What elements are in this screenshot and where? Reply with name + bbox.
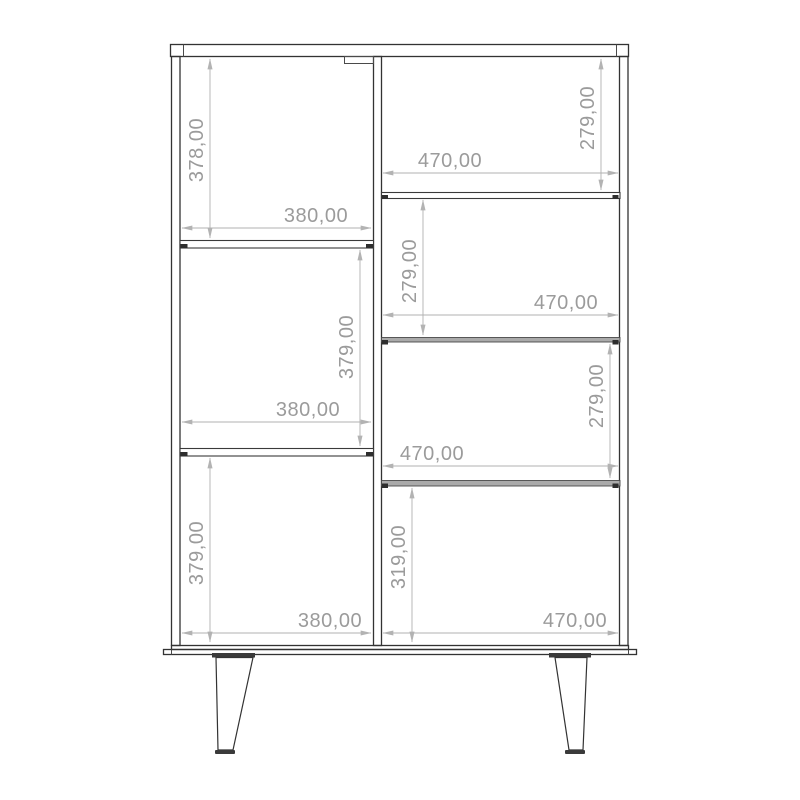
cabinet-technical-drawing: 378,00 380,00 379,00 380,00 379,00 380,0… [0, 0, 800, 800]
top-panel [171, 45, 629, 57]
dim-label-width-right-3: 470,00 [400, 443, 464, 465]
dim-label-width-left-bottom: 380,00 [298, 610, 362, 632]
shelf-left-1 [180, 241, 374, 249]
dim-label-height-left-bottom: 379,00 [186, 521, 208, 585]
shelf-right-3 [382, 481, 621, 489]
dim-label-height-left-middle: 379,00 [336, 315, 358, 379]
dim-label-width-left-top: 380,00 [284, 205, 348, 227]
center-divider-panel [374, 57, 382, 646]
shelf-left-2 [180, 449, 374, 457]
left-side-panel [172, 57, 181, 646]
shelf-right-1 [382, 193, 621, 200]
dim-label-width-right-2: 470,00 [534, 292, 598, 314]
right-leg [549, 653, 591, 754]
left-leg [212, 653, 255, 754]
dim-label-width-left-middle: 380,00 [276, 399, 340, 421]
cabinet-structure [164, 45, 637, 755]
drawing-canvas: 378,00 380,00 379,00 380,00 379,00 380,0… [0, 0, 800, 800]
dim-label-height-right-4: 319,00 [388, 525, 410, 589]
dim-label-width-right-4: 470,00 [543, 610, 607, 632]
dim-label-height-right-1: 279,00 [577, 86, 599, 150]
right-side-panel [620, 57, 629, 646]
divider-top-notch [345, 57, 374, 64]
dim-label-width-right-1: 470,00 [418, 150, 482, 172]
dim-label-height-right-3: 279,00 [586, 364, 608, 428]
dim-label-height-left-top: 378,00 [186, 118, 208, 182]
dim-label-height-right-2: 279,00 [399, 239, 421, 303]
shelf-right-2 [382, 338, 621, 345]
dimension-annotations: 378,00 380,00 379,00 380,00 379,00 380,0… [182, 59, 618, 642]
